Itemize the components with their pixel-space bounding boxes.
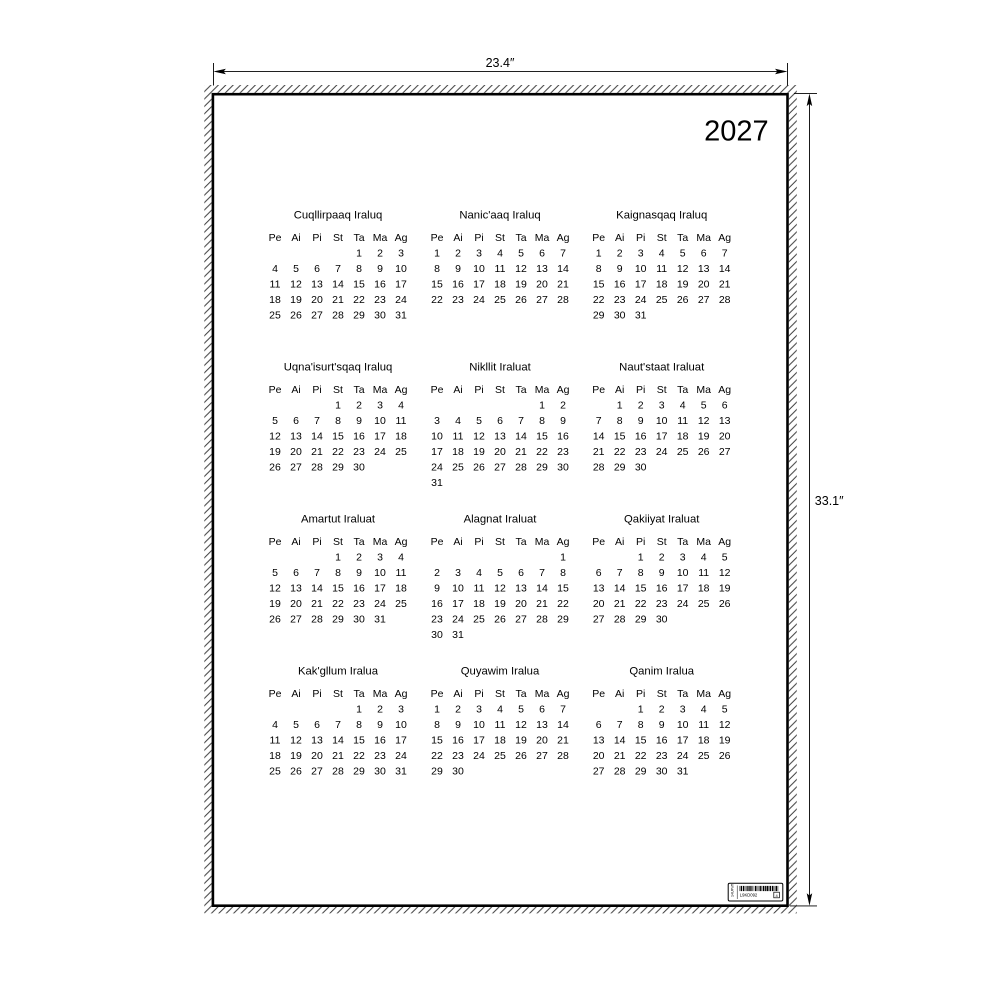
svg-text:18: 18 xyxy=(698,583,710,595)
svg-text:17: 17 xyxy=(635,279,647,291)
svg-text:Ai: Ai xyxy=(291,384,300,396)
svg-text:Ai: Ai xyxy=(291,232,300,244)
svg-text:St: St xyxy=(657,688,667,700)
svg-text:5: 5 xyxy=(272,415,278,427)
svg-text:18: 18 xyxy=(395,431,407,443)
svg-text:Pi: Pi xyxy=(474,384,483,396)
svg-text:11: 11 xyxy=(396,567,407,579)
svg-text:Ai: Ai xyxy=(615,384,624,396)
svg-text:30: 30 xyxy=(557,462,569,474)
svg-text:20: 20 xyxy=(593,598,605,610)
svg-text:2: 2 xyxy=(455,704,461,716)
svg-text:7: 7 xyxy=(314,415,320,427)
svg-text:2: 2 xyxy=(434,567,440,579)
svg-text:Ta: Ta xyxy=(677,384,688,396)
svg-text:St: St xyxy=(333,384,343,396)
svg-text:9: 9 xyxy=(659,719,665,731)
svg-text:3: 3 xyxy=(476,704,482,716)
svg-text:14: 14 xyxy=(332,279,344,291)
svg-text:21: 21 xyxy=(311,598,323,610)
svg-text:Ta: Ta xyxy=(677,536,688,548)
svg-text:1: 1 xyxy=(335,400,341,412)
svg-text:12: 12 xyxy=(719,719,731,731)
svg-text:10: 10 xyxy=(635,263,647,275)
svg-text:31: 31 xyxy=(431,477,443,489)
svg-text:26: 26 xyxy=(494,614,506,626)
svg-text:Nikllit Iraluat: Nikllit Iraluat xyxy=(469,362,531,374)
svg-text:19: 19 xyxy=(473,446,485,458)
svg-text:7: 7 xyxy=(518,415,524,427)
svg-text:22: 22 xyxy=(431,750,443,762)
svg-text:30: 30 xyxy=(656,766,668,778)
svg-text:1: 1 xyxy=(596,248,602,260)
svg-text:7: 7 xyxy=(560,704,566,716)
svg-text:28: 28 xyxy=(593,462,605,474)
svg-text:7: 7 xyxy=(335,263,341,275)
svg-text:26: 26 xyxy=(719,598,731,610)
svg-text:19: 19 xyxy=(677,279,689,291)
svg-text:17: 17 xyxy=(677,583,689,595)
svg-text:19: 19 xyxy=(515,279,527,291)
svg-text:Pe: Pe xyxy=(269,536,282,548)
svg-text:31: 31 xyxy=(452,629,464,641)
svg-text:19: 19 xyxy=(719,583,731,595)
svg-text:27: 27 xyxy=(593,614,605,626)
svg-text:13: 13 xyxy=(311,279,323,291)
svg-text:5: 5 xyxy=(476,415,482,427)
svg-text:6: 6 xyxy=(518,567,524,579)
svg-text:26: 26 xyxy=(290,766,302,778)
svg-text:22: 22 xyxy=(557,598,569,610)
svg-text:21: 21 xyxy=(515,446,527,458)
svg-text:Ag: Ag xyxy=(395,536,408,548)
svg-text:5: 5 xyxy=(272,567,278,579)
svg-text:St: St xyxy=(495,536,505,548)
svg-text:28: 28 xyxy=(311,462,323,474)
svg-text:13: 13 xyxy=(698,263,710,275)
svg-text:29: 29 xyxy=(332,462,344,474)
svg-text:Ma: Ma xyxy=(696,384,711,396)
svg-text:30: 30 xyxy=(635,462,647,474)
svg-text:20: 20 xyxy=(290,598,302,610)
svg-text:11: 11 xyxy=(396,415,407,427)
svg-text:Pi: Pi xyxy=(636,384,645,396)
svg-text:19: 19 xyxy=(269,598,281,610)
svg-text:17: 17 xyxy=(374,583,386,595)
svg-text:15: 15 xyxy=(635,735,647,747)
svg-text:7: 7 xyxy=(617,719,623,731)
svg-text:24: 24 xyxy=(677,750,689,762)
svg-text:8: 8 xyxy=(356,719,362,731)
svg-text:10: 10 xyxy=(395,719,407,731)
svg-text:Qakiiyat Iraluat: Qakiiyat Iraluat xyxy=(624,514,700,526)
svg-text:24: 24 xyxy=(374,598,386,610)
svg-text:Ma: Ma xyxy=(535,688,550,700)
svg-text:12: 12 xyxy=(290,279,302,291)
svg-text:11: 11 xyxy=(474,583,485,595)
svg-text:17: 17 xyxy=(473,735,485,747)
svg-text:18: 18 xyxy=(656,279,668,291)
svg-text:18: 18 xyxy=(452,446,464,458)
svg-text:7: 7 xyxy=(314,567,320,579)
svg-text:28: 28 xyxy=(515,462,527,474)
svg-text:17: 17 xyxy=(395,279,407,291)
svg-text:27: 27 xyxy=(698,294,710,306)
svg-text:4: 4 xyxy=(701,552,707,564)
svg-text:17: 17 xyxy=(452,598,464,610)
svg-text:14: 14 xyxy=(593,431,605,443)
svg-text:12: 12 xyxy=(677,263,689,275)
svg-text:14: 14 xyxy=(311,431,323,443)
svg-text:4: 4 xyxy=(272,719,278,731)
svg-text:12: 12 xyxy=(698,415,710,427)
svg-text:Pe: Pe xyxy=(431,536,444,548)
svg-text:6: 6 xyxy=(314,719,320,731)
svg-text:Ta: Ta xyxy=(353,232,364,244)
svg-text:Pe: Pe xyxy=(592,688,605,700)
svg-text:Ta: Ta xyxy=(515,384,526,396)
svg-text:3: 3 xyxy=(398,248,404,260)
svg-text:St: St xyxy=(333,688,343,700)
svg-text:30: 30 xyxy=(374,310,386,322)
svg-text:Ai: Ai xyxy=(615,536,624,548)
svg-text:4: 4 xyxy=(272,263,278,275)
svg-text:30: 30 xyxy=(353,462,365,474)
svg-text:3: 3 xyxy=(476,248,482,260)
svg-text:Ma: Ma xyxy=(373,232,388,244)
svg-text:19: 19 xyxy=(269,446,281,458)
svg-text:4: 4 xyxy=(497,704,503,716)
svg-text:24: 24 xyxy=(635,294,647,306)
svg-text:22: 22 xyxy=(353,750,365,762)
svg-text:5: 5 xyxy=(701,400,707,412)
svg-text:18: 18 xyxy=(494,279,506,291)
svg-text:6: 6 xyxy=(314,263,320,275)
svg-text:25: 25 xyxy=(698,750,710,762)
svg-text:18: 18 xyxy=(677,431,689,443)
svg-text:24: 24 xyxy=(473,750,485,762)
svg-text:Pi: Pi xyxy=(636,536,645,548)
svg-text:Pe: Pe xyxy=(269,232,282,244)
svg-text:Ag: Ag xyxy=(718,384,731,396)
svg-text:15: 15 xyxy=(635,583,647,595)
svg-text:30: 30 xyxy=(656,614,668,626)
svg-text:22: 22 xyxy=(635,598,647,610)
svg-text:Ta: Ta xyxy=(353,384,364,396)
svg-text:2: 2 xyxy=(560,400,566,412)
svg-text:Ag: Ag xyxy=(395,384,408,396)
svg-text:31: 31 xyxy=(635,310,647,322)
svg-text:29: 29 xyxy=(353,310,365,322)
svg-text:Ma: Ma xyxy=(696,688,711,700)
svg-text:10: 10 xyxy=(473,719,485,731)
svg-text:24: 24 xyxy=(395,750,407,762)
svg-text:19: 19 xyxy=(290,294,302,306)
svg-text:12: 12 xyxy=(494,583,506,595)
svg-text:L9KD092: L9KD092 xyxy=(740,892,758,897)
svg-text:28: 28 xyxy=(614,766,626,778)
svg-text:Ma: Ma xyxy=(696,536,711,548)
svg-text:21: 21 xyxy=(557,735,569,747)
svg-text:27: 27 xyxy=(719,446,731,458)
svg-text:Ag: Ag xyxy=(557,688,570,700)
svg-text:11: 11 xyxy=(677,415,688,427)
svg-text:26: 26 xyxy=(269,614,281,626)
svg-text:14UPoff: 14UPoff xyxy=(730,884,734,897)
svg-text:5: 5 xyxy=(293,263,299,275)
svg-text:4: 4 xyxy=(398,552,404,564)
svg-text:11: 11 xyxy=(495,719,506,731)
svg-text:12: 12 xyxy=(719,567,731,579)
svg-text:29: 29 xyxy=(635,766,647,778)
svg-text:16: 16 xyxy=(452,279,464,291)
svg-text:19: 19 xyxy=(494,598,506,610)
svg-text:29: 29 xyxy=(557,614,569,626)
svg-text:25: 25 xyxy=(269,310,281,322)
svg-text:9: 9 xyxy=(356,567,362,579)
svg-text:Ag: Ag xyxy=(718,536,731,548)
svg-text:33.1″: 33.1″ xyxy=(815,494,844,508)
svg-text:16: 16 xyxy=(374,735,386,747)
svg-text:26: 26 xyxy=(515,750,527,762)
svg-text:7: 7 xyxy=(560,248,566,260)
svg-text:23: 23 xyxy=(452,294,464,306)
svg-text:8: 8 xyxy=(596,263,602,275)
svg-text:24: 24 xyxy=(656,446,668,458)
svg-text:15: 15 xyxy=(431,279,443,291)
svg-text:27: 27 xyxy=(494,462,506,474)
svg-text:27: 27 xyxy=(593,766,605,778)
svg-text:22: 22 xyxy=(536,446,548,458)
svg-text:20: 20 xyxy=(311,294,323,306)
svg-text:3: 3 xyxy=(398,704,404,716)
svg-text:30: 30 xyxy=(614,310,626,322)
svg-text:18: 18 xyxy=(395,583,407,595)
svg-text:28: 28 xyxy=(614,614,626,626)
svg-text:10: 10 xyxy=(431,431,443,443)
svg-text:3: 3 xyxy=(434,415,440,427)
svg-text:11: 11 xyxy=(656,263,667,275)
svg-text:22: 22 xyxy=(593,294,605,306)
svg-text:25: 25 xyxy=(494,294,506,306)
svg-text:St: St xyxy=(657,232,667,244)
svg-text:20: 20 xyxy=(719,431,731,443)
svg-text:22: 22 xyxy=(332,446,344,458)
svg-text:25: 25 xyxy=(395,446,407,458)
svg-text:18: 18 xyxy=(269,294,281,306)
svg-text:26: 26 xyxy=(677,294,689,306)
svg-text:1: 1 xyxy=(560,552,566,564)
svg-text:24: 24 xyxy=(395,294,407,306)
svg-text:Ai: Ai xyxy=(453,536,462,548)
svg-text:8: 8 xyxy=(617,415,623,427)
svg-text:10: 10 xyxy=(677,719,689,731)
svg-text:Ag: Ag xyxy=(557,384,570,396)
svg-text:12: 12 xyxy=(269,583,281,595)
svg-text:20: 20 xyxy=(536,735,548,747)
svg-text:24: 24 xyxy=(431,462,443,474)
svg-text:St: St xyxy=(495,688,505,700)
svg-text:6: 6 xyxy=(497,415,503,427)
svg-text:Pe: Pe xyxy=(431,232,444,244)
svg-text:9: 9 xyxy=(455,719,461,731)
svg-text:10: 10 xyxy=(473,263,485,275)
svg-text:23: 23 xyxy=(635,446,647,458)
svg-text:9: 9 xyxy=(455,263,461,275)
svg-text:9: 9 xyxy=(434,583,440,595)
svg-text:23: 23 xyxy=(353,598,365,610)
svg-text:Qanim Iralua: Qanim Iralua xyxy=(629,666,694,678)
svg-text:Ag: Ag xyxy=(395,232,408,244)
svg-text:9: 9 xyxy=(377,263,383,275)
svg-text:20: 20 xyxy=(698,279,710,291)
svg-text:29: 29 xyxy=(635,614,647,626)
svg-text:16: 16 xyxy=(431,598,443,610)
svg-text:15: 15 xyxy=(614,431,626,443)
svg-text:26: 26 xyxy=(698,446,710,458)
svg-text:7: 7 xyxy=(596,415,602,427)
svg-text:6: 6 xyxy=(539,704,545,716)
svg-text:26: 26 xyxy=(473,462,485,474)
svg-text:Pi: Pi xyxy=(312,536,321,548)
svg-text:31: 31 xyxy=(677,766,689,778)
svg-text:31: 31 xyxy=(374,614,386,626)
svg-text:Ag: Ag xyxy=(557,232,570,244)
svg-text:4: 4 xyxy=(659,248,665,260)
svg-text:8: 8 xyxy=(434,719,440,731)
svg-text:17: 17 xyxy=(473,279,485,291)
svg-text:16: 16 xyxy=(656,735,668,747)
svg-text:Ma: Ma xyxy=(535,384,550,396)
svg-text:2: 2 xyxy=(659,552,665,564)
svg-text:8: 8 xyxy=(638,567,644,579)
svg-text:30: 30 xyxy=(452,766,464,778)
svg-text:Ta: Ta xyxy=(677,688,688,700)
svg-text:28: 28 xyxy=(719,294,731,306)
svg-text:3: 3 xyxy=(455,567,461,579)
svg-text:24: 24 xyxy=(374,446,386,458)
svg-text:30: 30 xyxy=(431,629,443,641)
svg-text:Kaignasqaq Iraluq: Kaignasqaq Iraluq xyxy=(616,210,707,222)
svg-text:Pi: Pi xyxy=(312,384,321,396)
svg-text:Ai: Ai xyxy=(291,536,300,548)
svg-text:13: 13 xyxy=(719,415,731,427)
svg-text:6: 6 xyxy=(596,567,602,579)
svg-text:21: 21 xyxy=(332,750,344,762)
svg-text:9: 9 xyxy=(377,719,383,731)
svg-text:6: 6 xyxy=(722,400,728,412)
svg-text:25: 25 xyxy=(452,462,464,474)
svg-text:4: 4 xyxy=(476,567,482,579)
svg-text:Ai: Ai xyxy=(291,688,300,700)
svg-text:12: 12 xyxy=(515,263,527,275)
svg-text:4: 4 xyxy=(398,400,404,412)
svg-text:4: 4 xyxy=(680,400,686,412)
svg-text:Uqna'isurt'sqaq Iraluq: Uqna'isurt'sqaq Iraluq xyxy=(284,362,393,374)
svg-text:30: 30 xyxy=(353,614,365,626)
svg-text:9: 9 xyxy=(659,567,665,579)
svg-text:18: 18 xyxy=(698,735,710,747)
svg-text:27: 27 xyxy=(536,294,548,306)
svg-text:18: 18 xyxy=(494,735,506,747)
svg-text:27: 27 xyxy=(290,614,302,626)
svg-text:St: St xyxy=(333,232,343,244)
svg-text:St: St xyxy=(495,232,505,244)
svg-text:Quyawim Iralua: Quyawim Iralua xyxy=(461,666,540,678)
svg-text:2: 2 xyxy=(638,400,644,412)
svg-text:14: 14 xyxy=(515,431,527,443)
svg-text:16: 16 xyxy=(635,431,647,443)
svg-text:16: 16 xyxy=(656,583,668,595)
svg-text:29: 29 xyxy=(536,462,548,474)
svg-text:25: 25 xyxy=(494,750,506,762)
svg-text:20: 20 xyxy=(311,750,323,762)
svg-text:25: 25 xyxy=(656,294,668,306)
svg-text:19: 19 xyxy=(290,750,302,762)
svg-text:23: 23 xyxy=(614,294,626,306)
svg-text:Ag: Ag xyxy=(557,536,570,548)
svg-text:13: 13 xyxy=(290,583,302,595)
svg-text:15: 15 xyxy=(353,279,365,291)
svg-text:21: 21 xyxy=(332,294,344,306)
svg-text:15: 15 xyxy=(431,735,443,747)
svg-text:12: 12 xyxy=(473,431,485,443)
svg-text:Ai: Ai xyxy=(453,688,462,700)
svg-text:Amartut Iraluat: Amartut Iraluat xyxy=(301,514,376,526)
svg-text:9: 9 xyxy=(617,263,623,275)
svg-text:St: St xyxy=(657,384,667,396)
svg-text:10: 10 xyxy=(374,567,386,579)
svg-text:Ta: Ta xyxy=(353,536,364,548)
svg-text:Ma: Ma xyxy=(373,536,388,548)
svg-text:27: 27 xyxy=(515,614,527,626)
svg-text:St: St xyxy=(657,536,667,548)
svg-text:10: 10 xyxy=(677,567,689,579)
svg-text:23: 23 xyxy=(353,446,365,458)
svg-text:22: 22 xyxy=(332,598,344,610)
svg-text:Ma: Ma xyxy=(373,384,388,396)
svg-text:10: 10 xyxy=(656,415,668,427)
svg-text:27: 27 xyxy=(536,750,548,762)
svg-text:Pe: Pe xyxy=(269,688,282,700)
svg-text:10: 10 xyxy=(395,263,407,275)
svg-text:8: 8 xyxy=(434,263,440,275)
svg-text:Ta: Ta xyxy=(515,536,526,548)
svg-text:Ta: Ta xyxy=(353,688,364,700)
svg-text:14: 14 xyxy=(614,583,626,595)
svg-text:Ai: Ai xyxy=(453,232,462,244)
svg-text:6: 6 xyxy=(596,719,602,731)
svg-text:4: 4 xyxy=(455,415,461,427)
svg-text:29: 29 xyxy=(593,310,605,322)
svg-text:Ag: Ag xyxy=(718,688,731,700)
svg-text:23: 23 xyxy=(431,614,443,626)
svg-text:1: 1 xyxy=(434,704,440,716)
svg-text:3: 3 xyxy=(659,400,665,412)
svg-text:Pi: Pi xyxy=(312,688,321,700)
svg-text:5: 5 xyxy=(680,248,686,260)
svg-text:21: 21 xyxy=(719,279,731,291)
svg-text:12: 12 xyxy=(515,719,527,731)
svg-text:21: 21 xyxy=(614,750,626,762)
svg-text:28: 28 xyxy=(557,750,569,762)
svg-text:24: 24 xyxy=(452,614,464,626)
svg-text:Ma: Ma xyxy=(373,688,388,700)
svg-text:25: 25 xyxy=(677,446,689,458)
svg-text:23: 23 xyxy=(452,750,464,762)
svg-text:4: 4 xyxy=(701,704,707,716)
svg-text:Pe: Pe xyxy=(431,384,444,396)
